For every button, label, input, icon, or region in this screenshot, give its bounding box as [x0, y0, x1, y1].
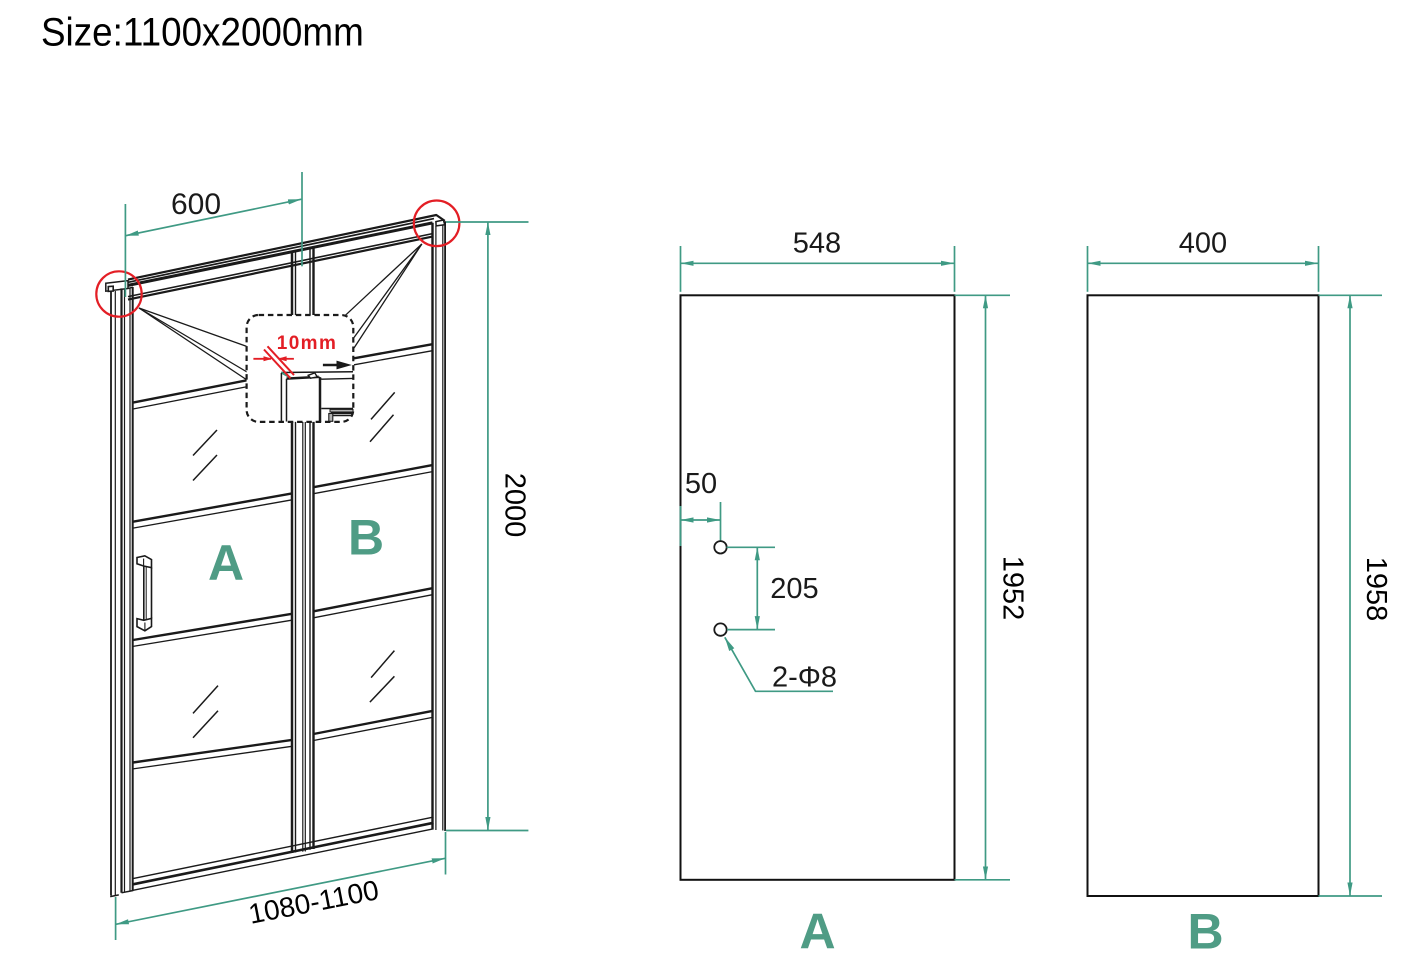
svg-text:2-Φ8: 2-Φ8 [772, 661, 837, 693]
svg-text:A: A [799, 903, 835, 959]
svg-text:50: 50 [685, 468, 717, 500]
svg-text:600: 600 [171, 188, 221, 221]
svg-text:2000: 2000 [499, 473, 531, 538]
svg-text:205: 205 [770, 573, 818, 605]
svg-text:Size:1100x2000mm: Size:1100x2000mm [41, 10, 364, 55]
svg-text:B: B [1187, 903, 1223, 959]
svg-text:548: 548 [793, 227, 841, 259]
svg-text:1952: 1952 [997, 556, 1029, 621]
svg-text:10mm: 10mm [277, 333, 338, 354]
svg-text:B: B [348, 509, 384, 565]
svg-text:A: A [208, 535, 244, 591]
svg-text:400: 400 [1179, 227, 1227, 259]
svg-text:1958: 1958 [1360, 557, 1392, 622]
